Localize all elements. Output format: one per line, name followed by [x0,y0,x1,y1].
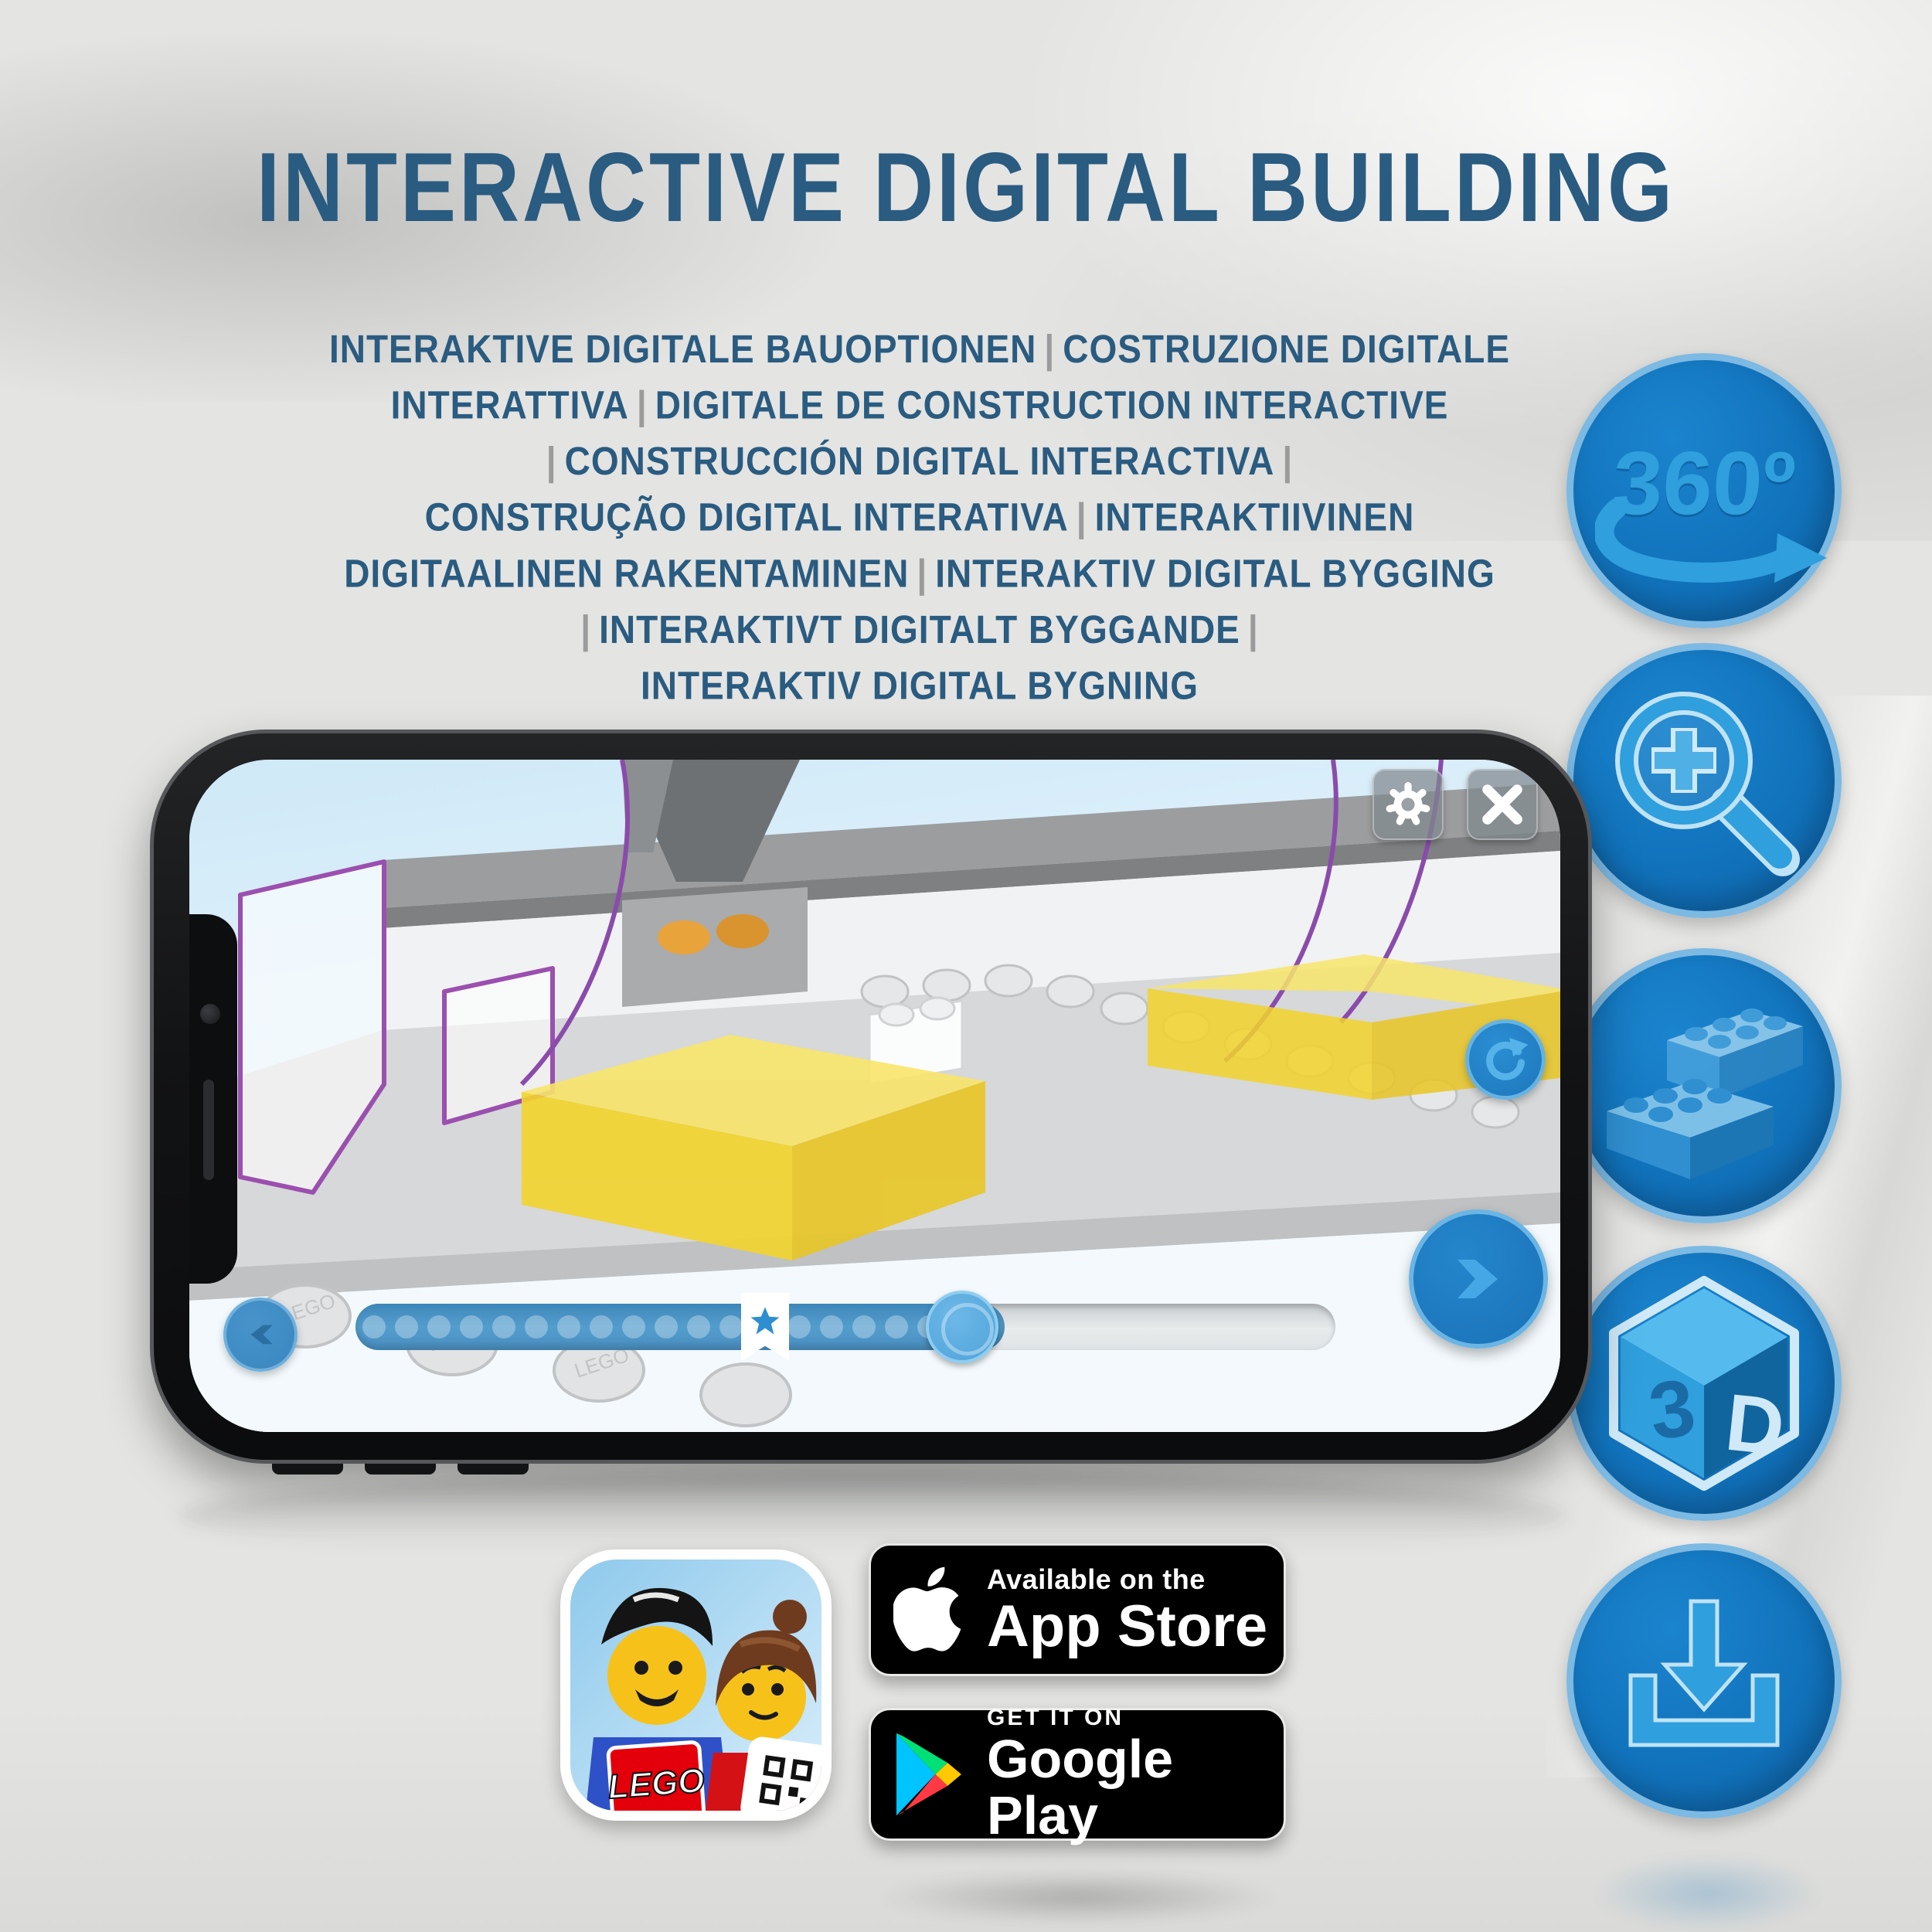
feature-zoom-badge [1566,643,1842,918]
magnifier-plus-icon [1604,680,1804,881]
3d-cube-icon: 3 D [1600,1271,1808,1495]
google-play-badge[interactable]: GET IT ON Google Play [869,1708,1286,1841]
page-title: INTERACTIVE DIGITAL BUILDING [0,130,1932,244]
badge-reflection [873,1870,1283,1924]
phone-notch [189,914,237,1284]
lego-app-artwork: LEGO [570,1560,821,1811]
phone-device-frame: LEGO LEGO LEGO [150,730,1592,1464]
rotate-view-button[interactable] [1465,1019,1546,1100]
lego-bricks-icon [1596,989,1812,1182]
previous-step-button[interactable] [223,1298,298,1372]
lego-app-icon[interactable]: LEGO [560,1549,832,1821]
google-play-logo-icon [871,1731,987,1818]
google-play-badge-line1: GET IT ON [987,1705,1284,1731]
front-camera [200,1004,220,1024]
feature-360-rotation-badge: 360º [1566,353,1842,628]
gear-icon [1383,779,1434,830]
phone-screen: LEGO LEGO LEGO [189,760,1560,1432]
star-icon [748,1304,782,1338]
chevron-right-icon [1438,1239,1519,1319]
subtitle-line-2: INTERATTIVA|DIGITALE DE CONSTRUCTION INT… [255,377,1584,434]
app-store-badge-line2: App Store [987,1597,1267,1656]
app-store-badge-line1: Available on the [987,1563,1267,1596]
subtitle-line-3: |CONSTRUCCIÓN DIGITAL INTERACTIVA| [255,433,1584,489]
earpiece-speaker [203,1080,214,1180]
phone-reflection [178,1470,1569,1563]
progress-bar-filled [355,1304,1005,1350]
subtitle-line-7: INTERAKTIV DIGITAL BYGNING [255,658,1584,714]
subtitle-line-1: INTERAKTIVE DIGITALE BAUOPTIONEN|COSTRUZ… [255,321,1584,377]
subtitle-multilingual: INTERAKTIVE DIGITALE BAUOPTIONEN|COSTRUZ… [255,321,1584,713]
cube-letter-d: D [1722,1378,1789,1473]
next-step-button[interactable] [1409,1209,1548,1349]
page-background: INTERACTIVE DIGITAL BUILDING INTERAKTIVE… [0,0,1932,1932]
feature-brick-options-badge [1566,948,1842,1223]
download-icon-reflection [1592,1855,1824,1932]
google-play-badge-line2: Google Play [987,1731,1284,1845]
close-icon [1479,781,1526,828]
subtitle-line-6: |INTERAKTIVT DIGITALT BYGGANDE| [255,601,1584,658]
app-store-badge[interactable]: Available on the App Store [869,1543,1286,1676]
rotation-arrow-icon [1595,498,1827,598]
rotate-refresh-icon [1481,1035,1530,1084]
feature-3d-view-badge: 3 D [1566,1246,1842,1521]
subtitle-line-4: CONSTRUÇÃO DIGITAL INTERATIVA|INTERAKTII… [255,489,1584,546]
settings-button[interactable] [1372,769,1444,840]
feature-download-badge [1566,1543,1842,1818]
download-icon [1607,1584,1801,1777]
build-progress-slider[interactable] [355,1304,1335,1350]
slider-handle[interactable] [926,1291,998,1363]
lego-logo-text: LEGO [607,1762,706,1807]
apple-logo-icon [871,1566,987,1653]
subtitle-line-5: DIGITAALINEN RAKENTAMINEN|INTERAKTIV DIG… [255,545,1584,601]
chevron-left-icon [239,1313,282,1356]
close-button[interactable] [1467,769,1538,840]
